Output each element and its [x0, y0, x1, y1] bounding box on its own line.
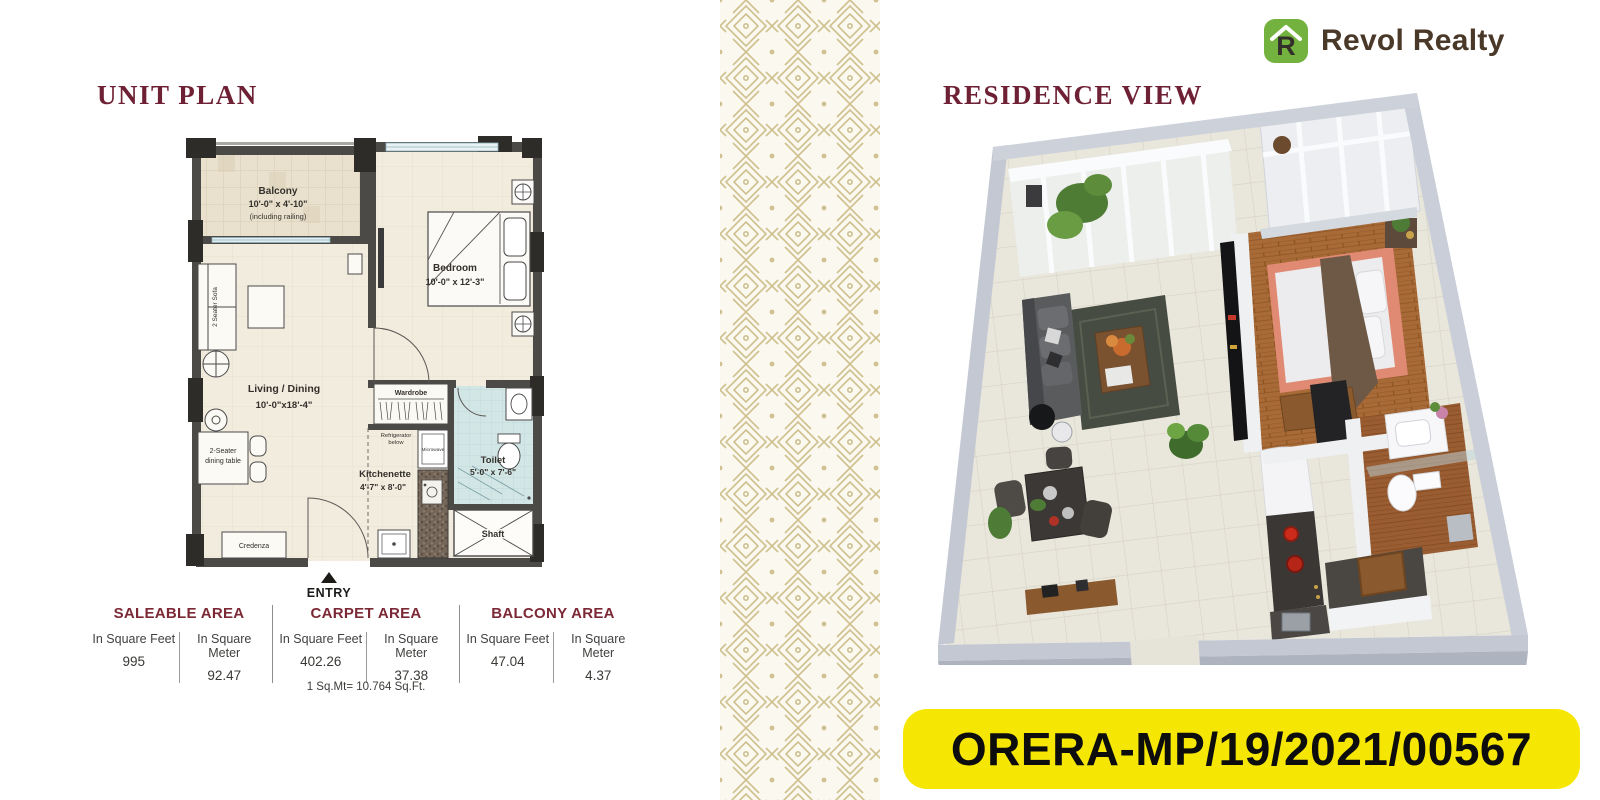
- house-logo-icon: R: [1263, 18, 1309, 64]
- microwave-label: Microwave: [422, 447, 445, 453]
- balcony-area-title: BALCONY AREA: [463, 605, 643, 622]
- balcony-dim: 10'-0" x 4'-10": [249, 199, 308, 209]
- toilet-label: Toilet: [481, 455, 506, 466]
- saleable-area-group: SALEABLE AREA In Square Feet 995 In Squa…: [86, 605, 272, 683]
- saleable-area-title: SALEABLE AREA: [89, 605, 269, 622]
- col-value: 402.26: [276, 654, 366, 669]
- col-label: In Square Meter: [180, 632, 270, 660]
- dining-label-2: dining table: [205, 458, 241, 465]
- col-value: 995: [89, 654, 179, 669]
- col-value: 47.04: [463, 654, 553, 669]
- sofa-label: 2 Seater Sofa: [212, 287, 219, 327]
- rera-badge: ORERA-MP/19/2021/00567: [903, 709, 1580, 789]
- kitchenette-label: Kitchenette: [359, 469, 411, 480]
- logo-letter: R: [1276, 31, 1296, 61]
- balcony-area-group: BALCONY AREA In Square Feet 47.04 In Squ…: [459, 605, 646, 683]
- shaft-label: Shaft: [482, 529, 505, 539]
- unit-floor-plan: Balcony 10'-0" x 4'-10" (including raili…: [172, 136, 554, 574]
- col-label: In Square Feet: [276, 632, 366, 646]
- col-label: In Square Meter: [554, 632, 644, 660]
- ornamental-divider: [720, 0, 880, 800]
- toilet-dim: 5'-0" x 7'-6": [470, 467, 516, 477]
- area-table: SALEABLE AREA In Square Feet 995 In Squa…: [86, 605, 646, 683]
- balcony-note: (including railing): [250, 212, 307, 221]
- dining-label-1: 2-Seater: [210, 448, 238, 455]
- fridge-label-2: below: [388, 440, 404, 446]
- carpet-area-group: CARPET AREA In Square Feet 402.26 In Squ…: [272, 605, 459, 683]
- brand-logo: R Revol Realty: [1263, 18, 1505, 64]
- unit-plan-title: UNIT PLAN: [97, 80, 258, 111]
- bedroom-dim: 10'-0" x 12'-3": [426, 277, 485, 287]
- wardrobe-label: Wardrobe: [395, 390, 428, 397]
- living-dim: 10'-0"x18'-4": [256, 400, 313, 411]
- brochure-page: UNIT PLAN RESIDENCE VIEW R Revol Realty: [0, 0, 1600, 800]
- credenza-label: Credenza: [239, 543, 269, 550]
- living-label: Living / Dining: [248, 383, 320, 395]
- kitchenette-dim: 4'-7" x 8'-0": [360, 482, 406, 492]
- residence-3d-view: [930, 85, 1530, 665]
- brand-name: Revol Realty: [1321, 24, 1505, 58]
- bedroom-label: Bedroom: [433, 263, 477, 274]
- entry-label: ENTRY: [284, 586, 374, 600]
- col-label: In Square Feet: [89, 632, 179, 646]
- carpet-area-title: CARPET AREA: [276, 605, 456, 622]
- balcony-label: Balcony: [259, 186, 298, 197]
- conversion-note: 1 Sq.Mt= 10.764 Sq.Ft.: [86, 681, 646, 693]
- entry-arrow-icon: [321, 572, 337, 583]
- fridge-label-1: Refrigerator: [381, 433, 412, 439]
- col-label: In Square Meter: [367, 632, 457, 660]
- col-label: In Square Feet: [463, 632, 553, 646]
